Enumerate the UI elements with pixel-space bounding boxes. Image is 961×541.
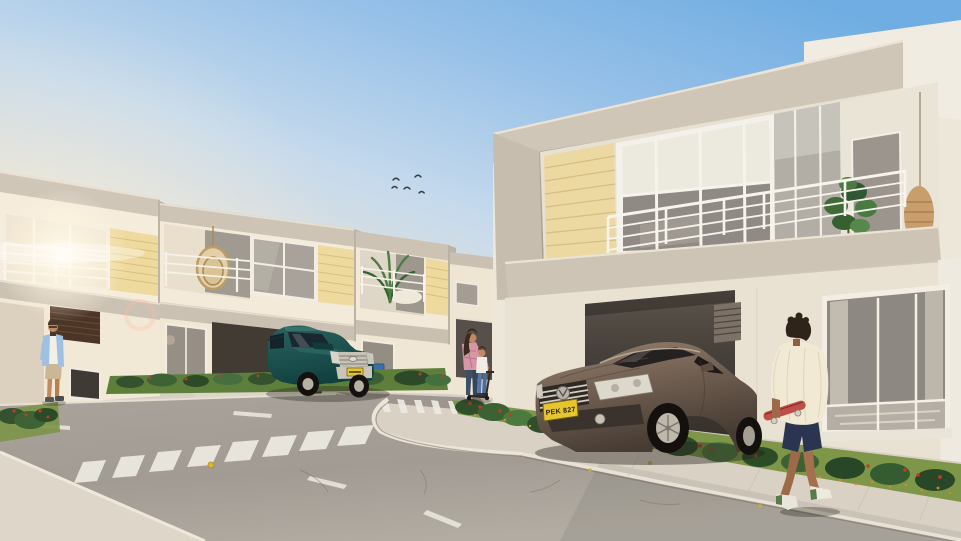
render-canvas: PEK 827 [0, 0, 961, 541]
house1-lower-window [70, 368, 100, 400]
house2-yellow-siding [318, 245, 354, 306]
main-lower-window [820, 284, 952, 442]
yellow-marker [208, 462, 214, 468]
main-yellow-siding [544, 143, 616, 260]
